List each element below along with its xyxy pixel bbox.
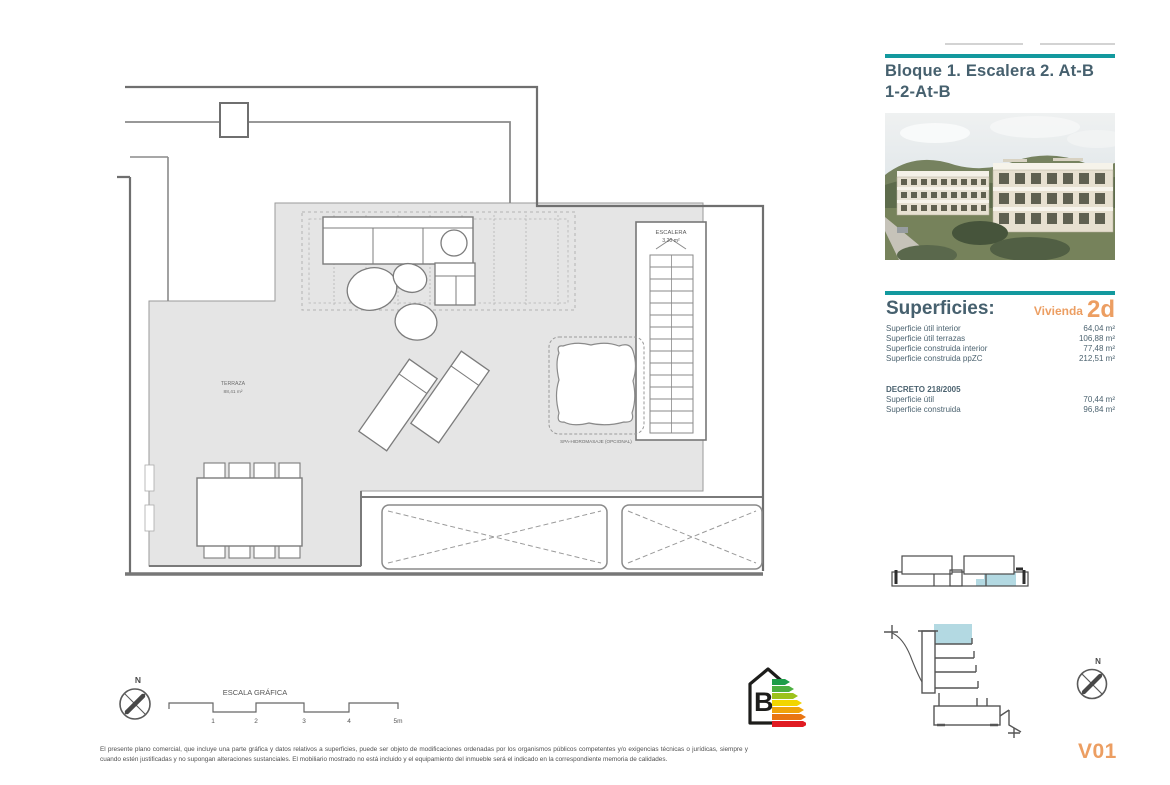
section-rule [885,291,1115,295]
row-label: Superficie útil terrazas [886,334,965,343]
brochure-page: { "header": { "title_line1": "Bloque 1. … [0,0,1170,785]
terrace-label: TERRAZA [221,381,246,387]
cloud [990,116,1080,138]
graphic-scale: ESCALA GRÁFICA 1 2 3 4 5m [165,683,415,728]
scale-tick: 1 [211,718,215,725]
floor-plan: ESCALERA 3,20 m² SPA-HIDROMASAJE (OPCION… [105,75,775,585]
superficies-row: Superficie construida interior 77,48 m² [886,344,1115,353]
plan-version: V01 [1078,740,1117,764]
scale-tick: 5m [393,718,402,725]
spa-label: SPA-HIDROMASAJE (OPCIONAL) [560,439,632,444]
round-table [441,230,467,256]
stairs-label: ESCALERA [656,230,687,236]
car [897,227,908,233]
north-compass: N [112,672,162,726]
planter [622,505,762,569]
left-wall [117,177,130,574]
scale-bar-line [169,703,398,712]
row-value: 64,04 m² [1083,324,1115,333]
north-compass-right: N [1070,655,1116,705]
scale-tick: 2 [254,718,258,725]
decreto-row: Superficie útil 70,44 m² [886,395,1115,404]
column [220,103,248,137]
vivienda-label: Vivienda [1034,304,1083,318]
scale-tick: 4 [347,718,351,725]
door-opening [145,465,154,491]
row-label: Superficie útil interior [886,324,961,333]
armchair [435,263,475,305]
row-value: 70,44 m² [1083,395,1115,404]
north-label: N [1095,657,1101,666]
energy-arrows [772,679,806,727]
development-render-photo [885,113,1115,260]
energy-rating-icon: B [742,664,806,732]
watermark-mark [945,43,1023,45]
cloud [900,123,970,143]
row-label: Superficie útil [886,395,934,404]
superficies-row: Superficie construida ppZC 212,51 m² [886,354,1115,363]
row-label: Superficie construida [886,405,961,414]
scale-tick: 3 [302,718,306,725]
stairs: ESCALERA 3,20 m² [636,222,706,440]
row-value: 212,51 m² [1079,354,1115,363]
vivienda-type: 2d [1087,296,1115,323]
title-line1: Bloque 1. Escalera 2. At-B [885,61,1117,82]
apartment-building-right [993,158,1113,232]
superficies-row: Superficie útil terrazas 106,88 m² [886,334,1115,343]
unit-key-plan [888,554,1033,594]
superficies-row: Superficie útil interior 64,04 m² [886,324,1115,333]
header-rule [885,54,1115,58]
inner-wall [125,122,510,203]
north-label: N [135,675,141,685]
dining-set [197,463,302,558]
decreto-row: Superficie construida 96,84 m² [886,405,1115,414]
terrace-area-value: 88,41 m² [224,389,243,395]
row-label: Superficie construida interior [886,344,987,353]
door-opening [145,505,154,531]
scale-title: ESCALA GRÁFICA [223,688,288,697]
row-value: 106,88 m² [1079,334,1115,343]
vivienda-code: Vivienda2d [1034,296,1115,324]
superficies-heading: Superficies: [886,298,995,320]
page-title: Bloque 1. Escalera 2. At-B 1-2-At-B [885,61,1117,103]
row-value: 77,48 m² [1083,344,1115,353]
highlighted-floor [934,624,972,644]
title-line2: 1-2-At-B [885,82,1117,103]
row-label: Superficie construida ppZC [886,354,983,363]
decreto-heading: DECRETO 218/2005 [886,385,961,394]
section-diagram [882,620,1022,750]
stairs-area-value: 3,20 m² [662,238,680,244]
planter [382,505,607,569]
apartment-building-left [897,171,989,215]
corridor-wall [130,157,168,301]
watermark-line [1040,43,1115,45]
row-value: 96,84 m² [1083,405,1115,414]
disclaimer-text: El presente plano comercial, que incluye… [100,745,748,764]
bush [990,237,1070,260]
energy-rating-letter: B [754,687,774,717]
